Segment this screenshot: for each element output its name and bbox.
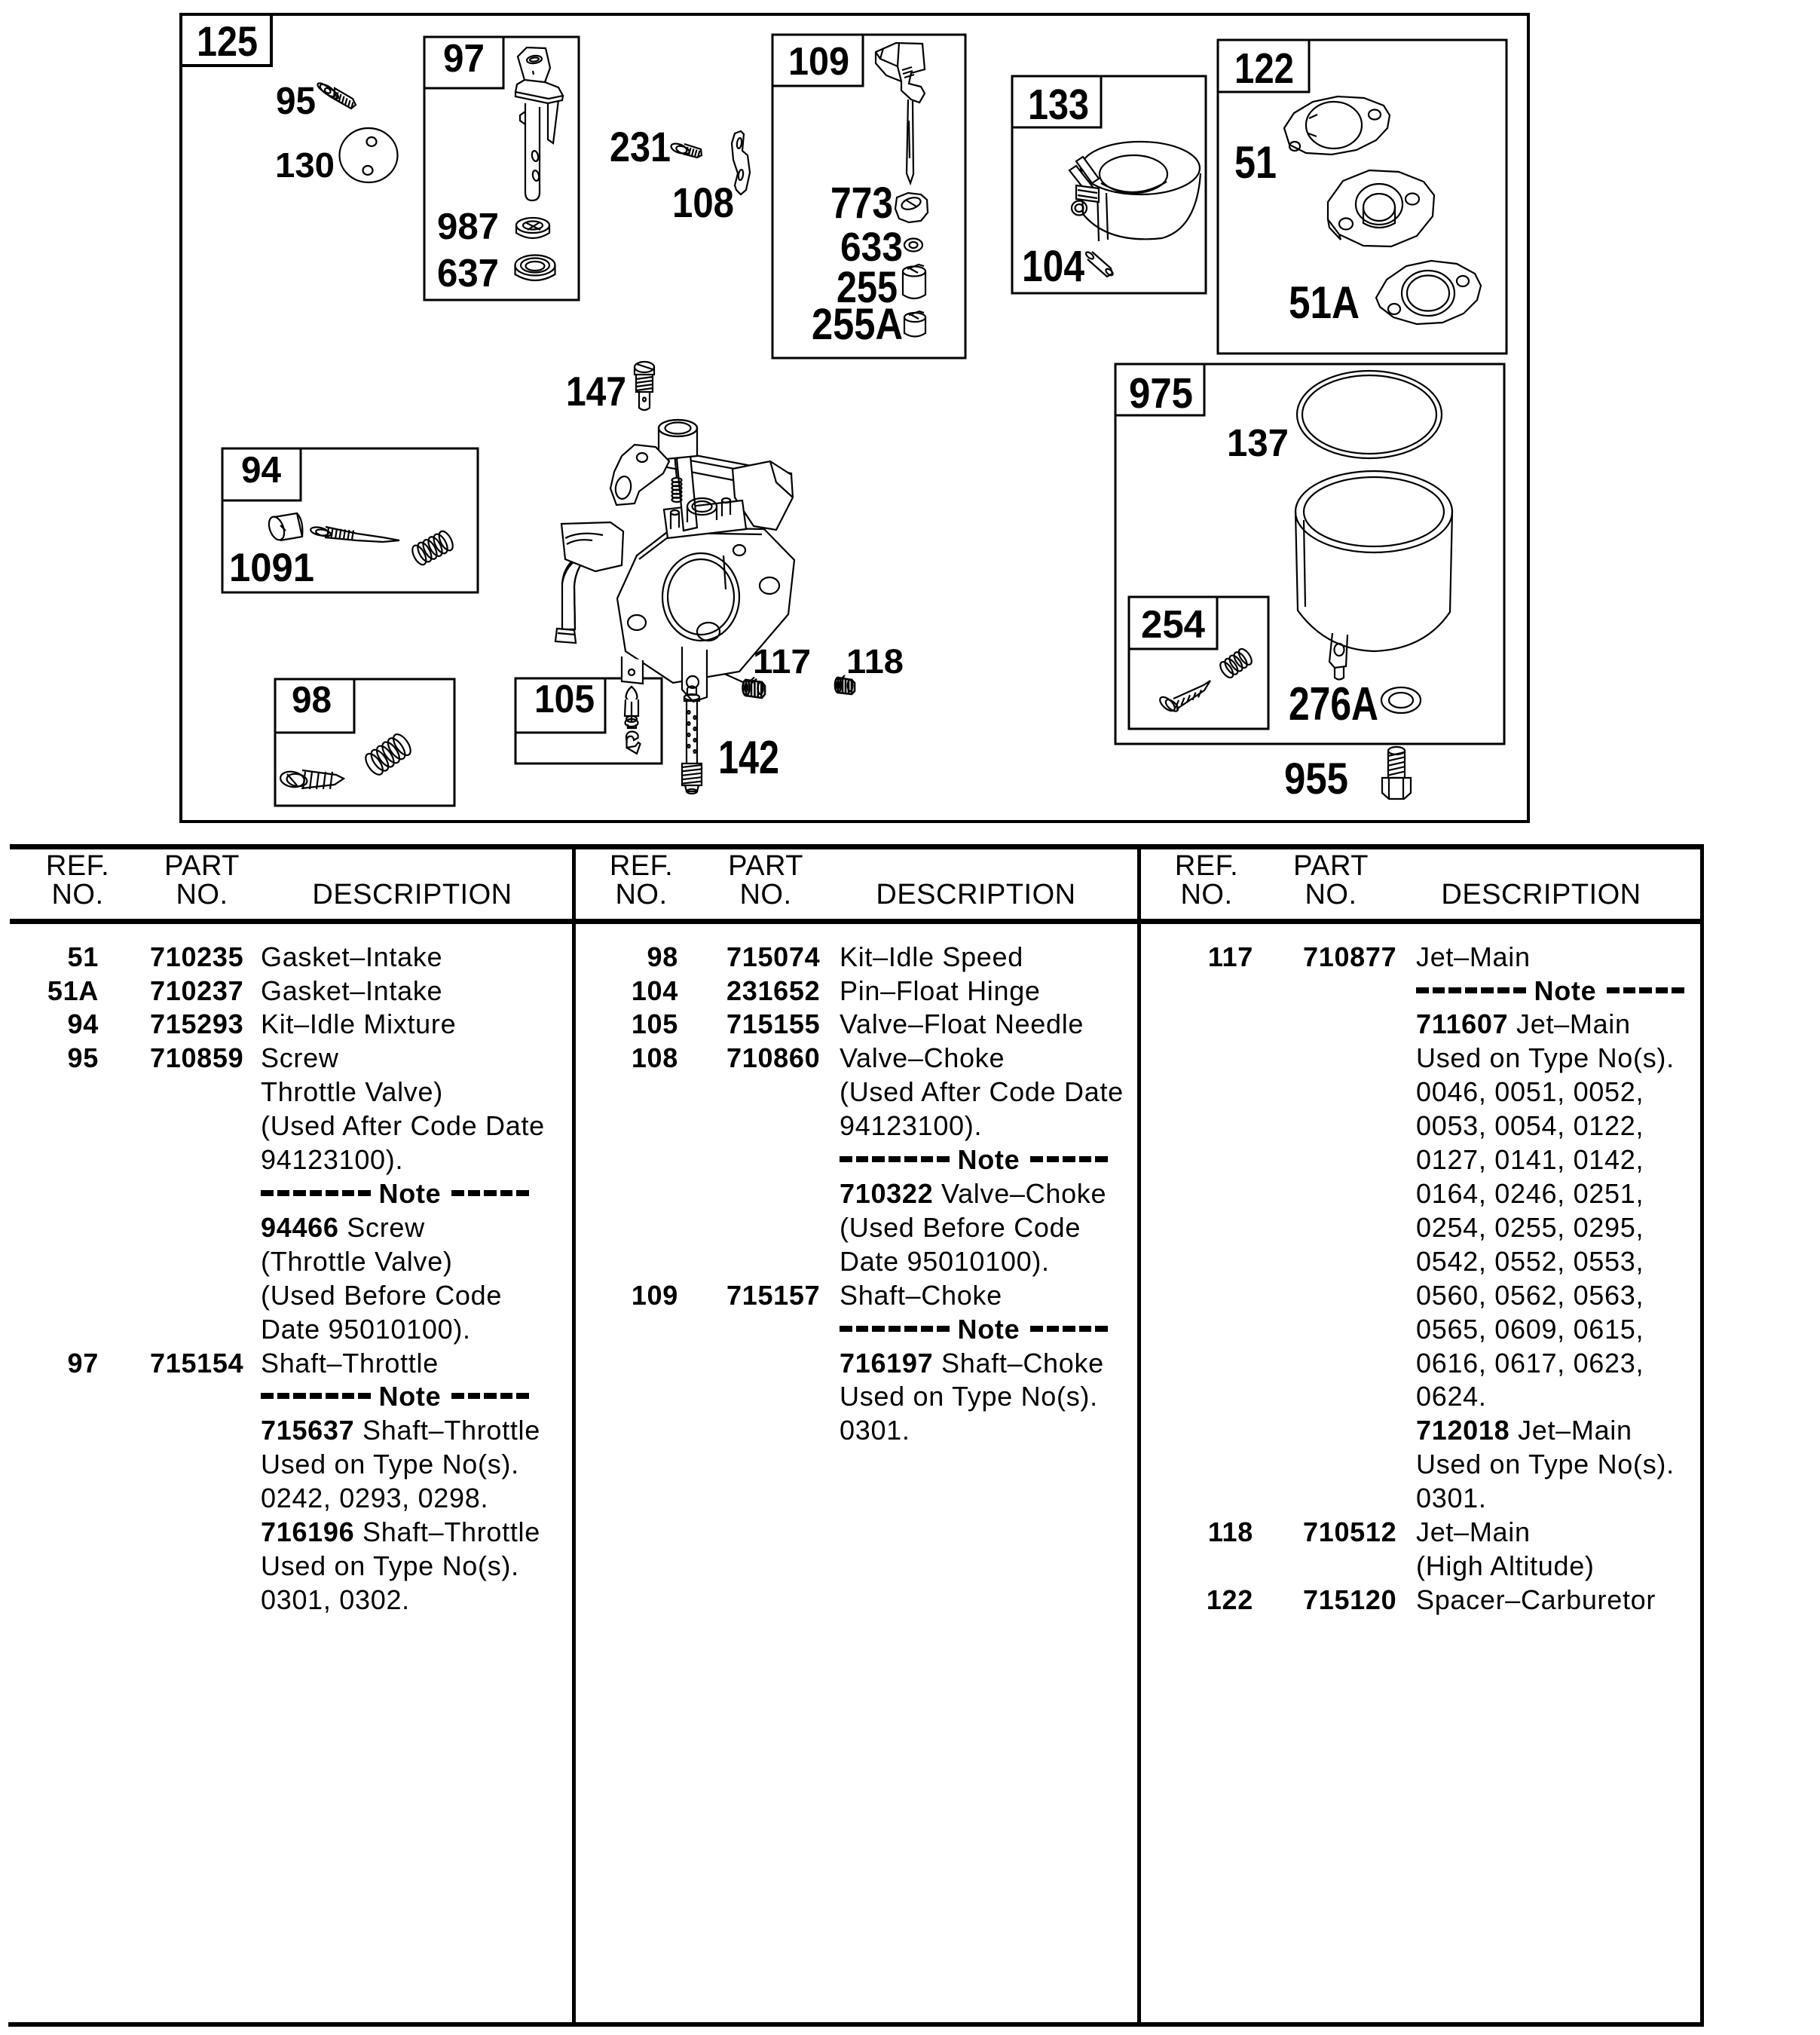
svg-text:118: 118 bbox=[846, 642, 904, 681]
svg-text:109: 109 bbox=[788, 40, 849, 84]
svg-text:955: 955 bbox=[1284, 754, 1348, 803]
svg-text:97: 97 bbox=[443, 37, 485, 81]
svg-text:975: 975 bbox=[1129, 369, 1193, 418]
svg-text:117: 117 bbox=[753, 642, 811, 681]
svg-text:254: 254 bbox=[1141, 603, 1205, 647]
svg-text:987: 987 bbox=[437, 207, 499, 247]
svg-text:122: 122 bbox=[1234, 44, 1294, 93]
svg-text:147: 147 bbox=[566, 368, 626, 415]
svg-text:637: 637 bbox=[437, 252, 499, 295]
svg-text:95: 95 bbox=[276, 79, 316, 122]
svg-text:98: 98 bbox=[292, 680, 332, 721]
svg-text:125: 125 bbox=[197, 17, 258, 65]
svg-text:255A: 255A bbox=[812, 300, 903, 349]
svg-text:51: 51 bbox=[1234, 137, 1277, 188]
svg-text:137: 137 bbox=[1227, 421, 1289, 464]
svg-text:94: 94 bbox=[241, 450, 281, 491]
svg-text:276A: 276A bbox=[1289, 678, 1378, 730]
svg-text:130: 130 bbox=[275, 145, 335, 185]
svg-text:105: 105 bbox=[534, 678, 595, 721]
svg-text:231: 231 bbox=[610, 123, 671, 170]
svg-text:142: 142 bbox=[718, 732, 779, 784]
svg-text:51A: 51A bbox=[1289, 277, 1360, 328]
svg-text:108: 108 bbox=[672, 179, 734, 226]
svg-text:773: 773 bbox=[830, 179, 893, 228]
svg-text:1091: 1091 bbox=[229, 546, 314, 590]
svg-text:104: 104 bbox=[1022, 242, 1084, 291]
svg-text:133: 133 bbox=[1028, 81, 1089, 129]
